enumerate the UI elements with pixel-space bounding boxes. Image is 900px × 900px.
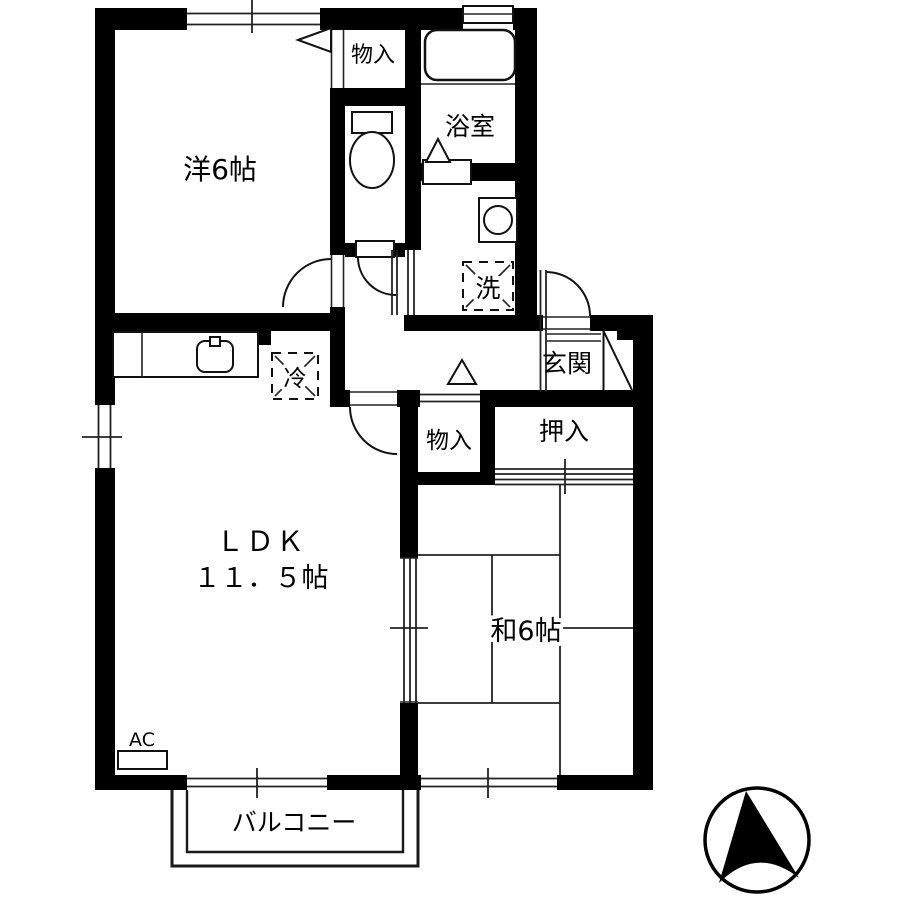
entry-door-arc [546,272,590,316]
wall [330,88,345,255]
wall [633,315,653,790]
room-label-ldk: ＬＤＫ [216,525,306,558]
wall [330,390,350,407]
wall [480,390,653,407]
toilet-bowl-icon [350,132,394,188]
washbasin-bowl-icon [484,206,512,234]
room-label-washer: 洗 [475,274,500,303]
wall [95,775,187,790]
wall [400,407,418,558]
step-marker [448,360,476,384]
kitchen-counter [113,332,258,377]
bathtub-icon [425,30,515,80]
wall [397,390,420,407]
bath-step [423,160,471,184]
wall [400,703,418,775]
label-ac: AC [129,729,155,751]
door-arc [283,259,331,307]
room-label-entrance: 玄関 [542,349,592,378]
floor-plan-page: 洋6帖 物入 浴室 洗 冷 玄関 物入 押入 ＬＤＫ １１．５帖 和6帖 バルコ… [0,0,900,900]
room-label-storage-top: 物入 [351,43,395,68]
toilet-door-leaf [356,241,394,257]
door-arc [358,257,396,295]
room-label-japanese: 和6帖 [490,616,561,647]
wall [405,30,421,250]
compass [705,788,809,892]
wall [345,88,410,106]
bath-door [426,139,450,162]
room-label-balcony: バルコニー [232,808,357,837]
room-label-storage-hall: 物入 [426,428,472,454]
room-label-bathroom: 浴室 [445,112,495,141]
wall [95,468,115,790]
room-label-western: 洋6帖 [183,153,257,186]
wall [404,315,543,331]
door-arc [350,407,397,454]
wall [557,775,653,790]
wall [320,8,463,30]
room-label-fridge: 冷 [284,366,307,392]
floor-plan-image: 洋6帖 物入 浴室 洗 冷 玄関 物入 押入 ＬＤＫ １１．５帖 和6帖 バルコ… [0,0,900,900]
room-label-oshiire: 押入 [539,417,589,446]
wall [95,313,345,331]
toilet-icon [352,112,392,133]
wall [480,390,495,472]
ac-unit [118,751,167,769]
wall [327,775,421,790]
room-label-ldk-size: １１．５帖 [194,563,329,594]
wall [418,472,495,485]
faucet-icon [210,337,220,346]
closet-door-leaf [298,28,331,52]
